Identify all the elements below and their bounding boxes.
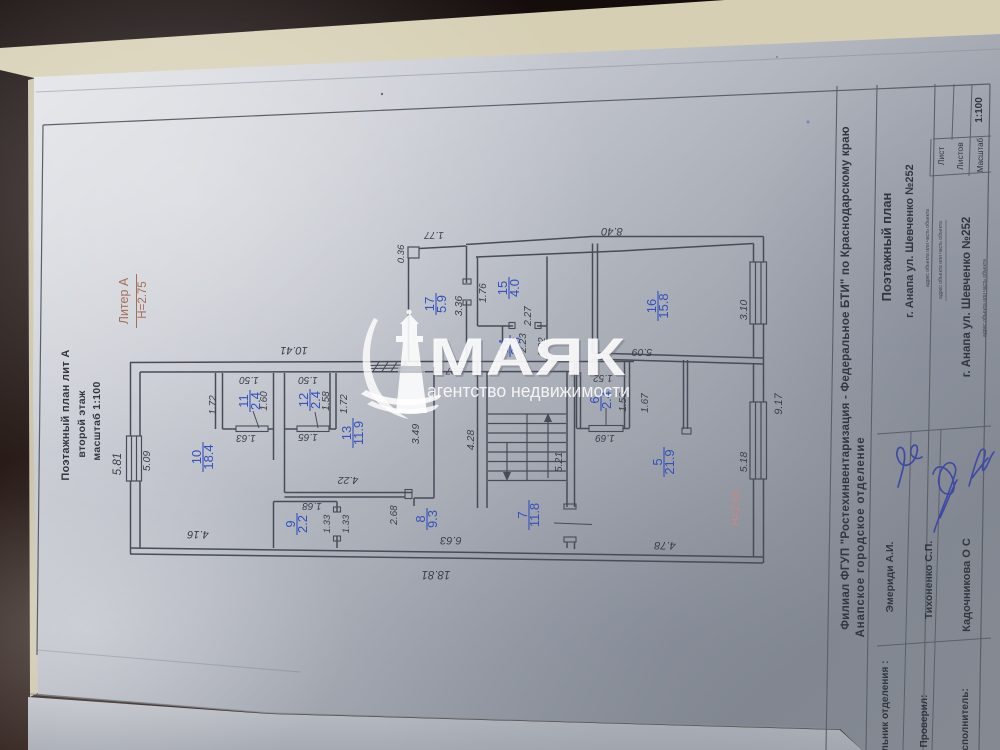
svg-text:Лист: Лист xyxy=(936,147,946,166)
svg-text:1.72: 1.72 xyxy=(208,395,219,415)
svg-text:Тихоненко С.П.: Тихоненко С.П. xyxy=(923,541,935,619)
svg-text:11.9: 11.9 xyxy=(351,421,366,445)
svg-text:адрес объекта или часть объект: адрес объекта или часть объекта xyxy=(925,209,931,287)
svg-text:9.3: 9.3 xyxy=(425,510,440,528)
svg-text:Поэтажный план: Поэтажный план xyxy=(879,193,894,302)
svg-text:1.33: 1.33 xyxy=(322,514,333,533)
svg-text:1.65: 1.65 xyxy=(298,431,318,442)
svg-text:2.68: 2.68 xyxy=(389,505,400,526)
svg-text:Исполнитель:: Исполнитель: xyxy=(960,688,971,750)
svg-text:4.16: 4.16 xyxy=(186,528,208,540)
svg-text:2.27: 2.27 xyxy=(523,306,534,327)
svg-text:Проверил:: Проверил: xyxy=(919,695,930,748)
svg-text:1.68: 1.68 xyxy=(302,500,322,511)
svg-text:Филиал ФГУП "Ростехинвентариза: Филиал ФГУП "Ростехинвентаризация - Феде… xyxy=(840,126,852,629)
svg-text:5.21: 5.21 xyxy=(553,452,565,472)
svg-text:Масштаб: Масштаб xyxy=(976,137,985,172)
svg-text:6.63: 6.63 xyxy=(439,534,461,546)
svg-text:агентство недвижимости: агентство недвижимости xyxy=(427,380,630,401)
svg-text:18.4: 18.4 xyxy=(201,444,216,469)
svg-text:1.33: 1.33 xyxy=(341,514,352,533)
svg-text:1:100: 1:100 xyxy=(974,97,985,123)
svg-text:4.0: 4.0 xyxy=(507,279,522,297)
svg-text:2.4: 2.4 xyxy=(248,392,263,410)
svg-text:второй этаж: второй этаж xyxy=(76,390,88,458)
svg-text:2.4: 2.4 xyxy=(308,391,323,409)
svg-text:1.50: 1.50 xyxy=(298,374,318,385)
svg-text:масштаб 1:100: масштаб 1:100 xyxy=(91,381,103,460)
svg-text:3.49: 3.49 xyxy=(410,424,422,445)
svg-text:10.41: 10.41 xyxy=(280,344,308,356)
svg-text:адрес объекта или часть объект: адрес объекта или часть объекта xyxy=(982,259,988,337)
svg-text:2.2: 2.2 xyxy=(295,515,310,533)
svg-text:4.78: 4.78 xyxy=(653,539,675,551)
svg-text:1.69: 1.69 xyxy=(595,432,615,443)
svg-text:МАЯК: МАЯК xyxy=(429,328,626,387)
svg-text:адрес объекта или часть объект: адрес объекта или часть объекта xyxy=(938,221,944,299)
svg-text:Эмериди А.И.: Эмериди А.И. xyxy=(884,541,896,612)
svg-text:4.28: 4.28 xyxy=(465,430,477,451)
svg-text:1.50: 1.50 xyxy=(239,374,259,385)
svg-text:Анапское городское отделение: Анапское городское отделение xyxy=(855,437,867,638)
svg-text:Листов: Листов xyxy=(955,142,965,170)
svg-text:5.18: 5.18 xyxy=(738,452,750,473)
svg-text:г. Анапа ул. Шевченко №252: г. Анапа ул. Шевченко №252 xyxy=(904,164,916,318)
svg-text:Поэтажный план лит А: Поэтажный план лит А xyxy=(60,349,72,480)
svg-text:1.76: 1.76 xyxy=(478,283,489,303)
svg-text:1.63: 1.63 xyxy=(236,432,256,443)
svg-text:9.17: 9.17 xyxy=(773,392,785,414)
svg-text:21.9: 21.9 xyxy=(662,449,677,474)
svg-text:1.67: 1.67 xyxy=(640,393,651,413)
svg-text:Н=2.75: Н=2.75 xyxy=(137,281,149,318)
svg-text:1.72: 1.72 xyxy=(339,394,350,414)
svg-text:3.10: 3.10 xyxy=(738,300,750,321)
svg-text:Кадочникова О С: Кадочникова О С xyxy=(961,538,973,632)
svg-text:5.9: 5.9 xyxy=(434,295,449,313)
svg-text:0.36: 0.36 xyxy=(396,244,407,263)
svg-text:3.36: 3.36 xyxy=(453,296,465,317)
svg-text:Литер А: Литер А xyxy=(117,277,131,324)
svg-text:18.81: 18.81 xyxy=(422,568,451,580)
svg-text:5.81: 5.81 xyxy=(112,453,124,475)
svg-text:Начальник отделения :: Начальник отделения : xyxy=(880,661,891,750)
svg-text:15.8: 15.8 xyxy=(656,293,671,318)
svg-text:5.09: 5.09 xyxy=(141,451,153,472)
svg-text:г. Анапа ул. Шевченко №252: г. Анапа ул. Шевченко №252 xyxy=(961,217,973,378)
svg-text:4.22: 4.22 xyxy=(338,474,359,486)
svg-text:1.77: 1.77 xyxy=(424,229,444,240)
svg-text:8.40: 8.40 xyxy=(600,225,622,237)
svg-text:5.09: 5.09 xyxy=(632,346,653,358)
svg-text:11.8: 11.8 xyxy=(527,503,542,527)
svg-text:Н=2.45: Н=2.45 xyxy=(730,490,742,526)
